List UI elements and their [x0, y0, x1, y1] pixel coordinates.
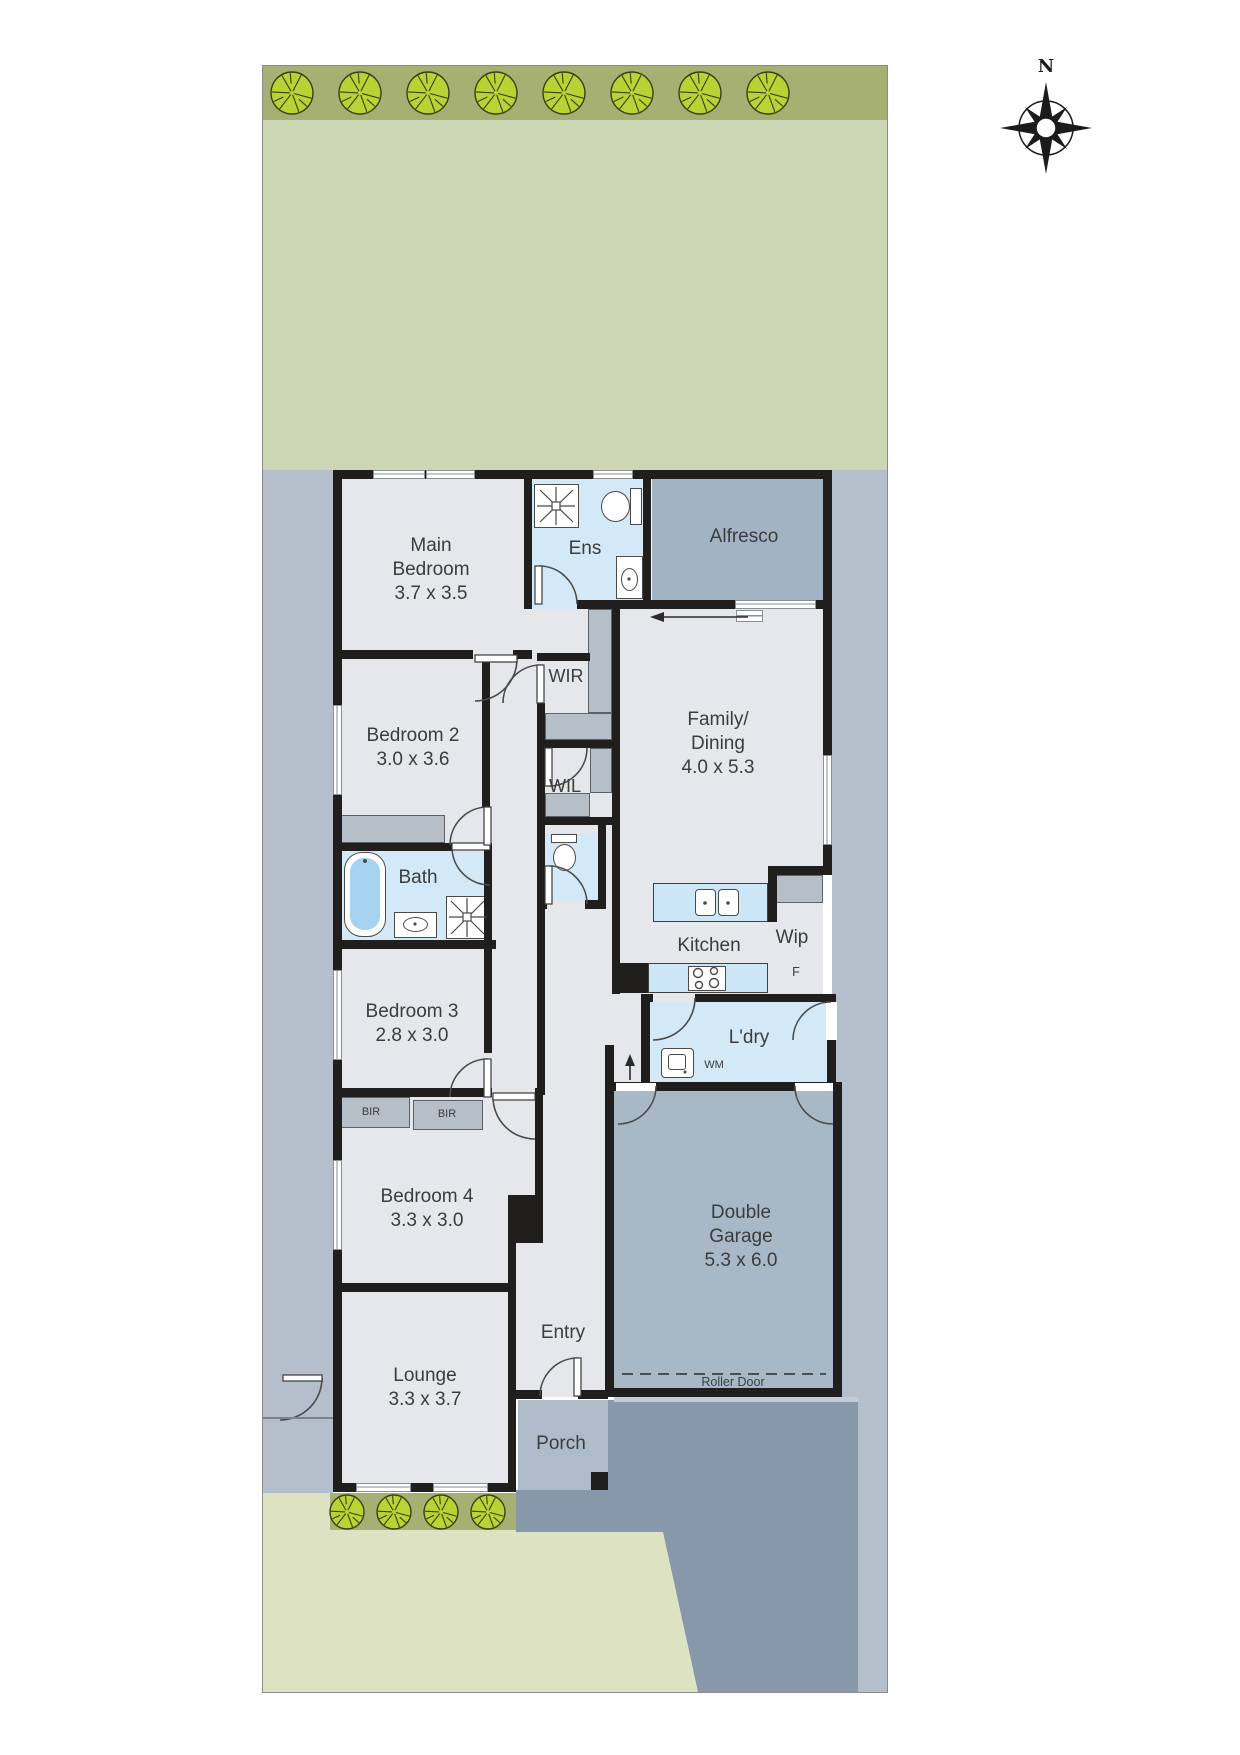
label-main-bedroom: Main Bedroom 3.7 x 3.5	[392, 534, 469, 606]
north-label: N	[1038, 55, 1054, 79]
room-name: Bedroom 4	[381, 1185, 474, 1209]
door-leaf	[484, 807, 491, 845]
room-name: Bath	[398, 866, 437, 890]
tree-icon	[424, 1495, 458, 1529]
floor-plan-canvas: Main Bedroom 3.7 x 3.5 Ens Alfresco WIR …	[0, 0, 1240, 1755]
label-wil: WIL	[549, 774, 581, 798]
door-arc-wir	[503, 665, 541, 703]
wm-label: WM	[704, 1059, 724, 1071]
door-leaf	[537, 665, 544, 703]
door-leaf	[545, 866, 552, 904]
door-arc-garage-side	[795, 1086, 833, 1124]
label-entry: Entry	[541, 1321, 585, 1345]
door-leaf	[484, 1059, 491, 1097]
room-name: Alfresco	[710, 525, 779, 549]
door-arc-bedroom2	[450, 807, 488, 845]
label-bedroom4: Bedroom 4 3.3 x 3.0	[381, 1185, 474, 1233]
ens-shower-drain	[552, 502, 560, 510]
plan-overlay	[0, 0, 1240, 1755]
room-name: Lounge	[389, 1364, 462, 1388]
label-wir: WIR	[549, 664, 584, 688]
tree-icon	[407, 72, 449, 114]
door-arc-ens	[539, 566, 577, 604]
door-leaves	[283, 566, 581, 1396]
label-wip: Wip	[776, 926, 809, 950]
bir-label: BIR	[438, 1108, 456, 1120]
label-bath: Bath	[398, 866, 437, 890]
door-arc-laundry	[653, 998, 695, 1040]
room-dims: 3.7 x 3.5	[392, 582, 469, 606]
label-fridge: F	[792, 965, 800, 979]
door-arc-entry	[540, 1358, 578, 1396]
roller-door-label: Roller Door	[701, 1375, 764, 1389]
door-arc-wc	[549, 866, 587, 904]
tree-icon	[471, 1495, 505, 1529]
room-name: Ens	[569, 537, 602, 561]
label-lounge: Lounge 3.3 x 3.7	[389, 1364, 462, 1412]
room-name: Family/	[682, 708, 755, 732]
room-name: Porch	[536, 1432, 586, 1456]
garage-door-arrow-icon	[625, 1054, 635, 1080]
gate-leaf	[283, 1375, 322, 1381]
tree-icon	[475, 72, 517, 114]
room-dims: 3.3 x 3.0	[381, 1209, 474, 1233]
gate-arc	[280, 1378, 322, 1420]
label-family-dining: Family/ Dining 4.0 x 5.3	[682, 708, 755, 780]
room-dims: 3.0 x 3.6	[367, 748, 460, 772]
tree-icon	[679, 72, 721, 114]
room-dims: 4.0 x 5.3	[682, 756, 755, 780]
tree-icon	[543, 72, 585, 114]
room-name: Entry	[541, 1321, 585, 1345]
door-leaf	[574, 1358, 581, 1396]
door-arc-laundry-external	[793, 1002, 831, 1040]
door-arc-bath	[452, 847, 490, 885]
fridge-label: F	[792, 965, 800, 979]
room-name: WIL	[549, 774, 581, 798]
bir-label: BIR	[362, 1106, 380, 1118]
room-name: Kitchen	[677, 934, 740, 958]
room-name: Bedroom 2	[367, 724, 460, 748]
cooktop-burners-icon	[694, 968, 719, 989]
label-north: N	[1038, 55, 1054, 79]
door-arc-garage-internal	[618, 1086, 656, 1124]
room-dims: 3.3 x 3.7	[389, 1388, 462, 1412]
label-garage: Double Garage 5.3 x 6.0	[705, 1201, 778, 1273]
tree-icon	[339, 72, 381, 114]
room-name: Bedroom	[392, 558, 469, 582]
room-name: Bedroom 3	[366, 1000, 459, 1024]
label-bedroom2: Bedroom 2 3.0 x 3.6	[367, 724, 460, 772]
tree-icon	[747, 72, 789, 114]
sliding-door-arrow-icon	[650, 612, 748, 622]
label-ens: Ens	[569, 537, 602, 561]
tree-icon	[611, 72, 653, 114]
label-washing-machine: WM	[704, 1059, 724, 1071]
label-roller-door: Roller Door	[701, 1375, 764, 1389]
room-name: Wip	[776, 926, 809, 950]
tree-icon	[330, 1495, 364, 1529]
door-arc-bedroom3	[450, 1059, 488, 1097]
label-bir-right: BIR	[438, 1108, 456, 1120]
door-leaf	[493, 1093, 535, 1100]
room-name: L'dry	[729, 1026, 770, 1050]
door-leaf	[535, 566, 542, 604]
label-bir-left: BIR	[362, 1106, 380, 1118]
door-arcs	[280, 566, 833, 1420]
bath-shower-drain	[463, 913, 471, 921]
compass-rose-icon	[1000, 82, 1092, 174]
door-leaf	[475, 655, 517, 662]
room-name: Double	[705, 1201, 778, 1225]
label-bedroom3: Bedroom 3 2.8 x 3.0	[366, 1000, 459, 1048]
room-name: Main	[392, 534, 469, 558]
tree-icon	[377, 1495, 411, 1529]
label-laundry: L'dry	[729, 1026, 770, 1050]
tree-icon	[271, 72, 313, 114]
door-arc-bedroom4	[493, 1097, 535, 1139]
room-dims: 5.3 x 6.0	[705, 1249, 778, 1273]
room-name: Dining	[682, 732, 755, 756]
label-alfresco: Alfresco	[710, 525, 779, 549]
room-name: Garage	[705, 1225, 778, 1249]
label-porch: Porch	[536, 1432, 586, 1456]
label-kitchen: Kitchen	[677, 934, 740, 958]
room-name: WIR	[549, 664, 584, 688]
room-dims: 2.8 x 3.0	[366, 1024, 459, 1048]
